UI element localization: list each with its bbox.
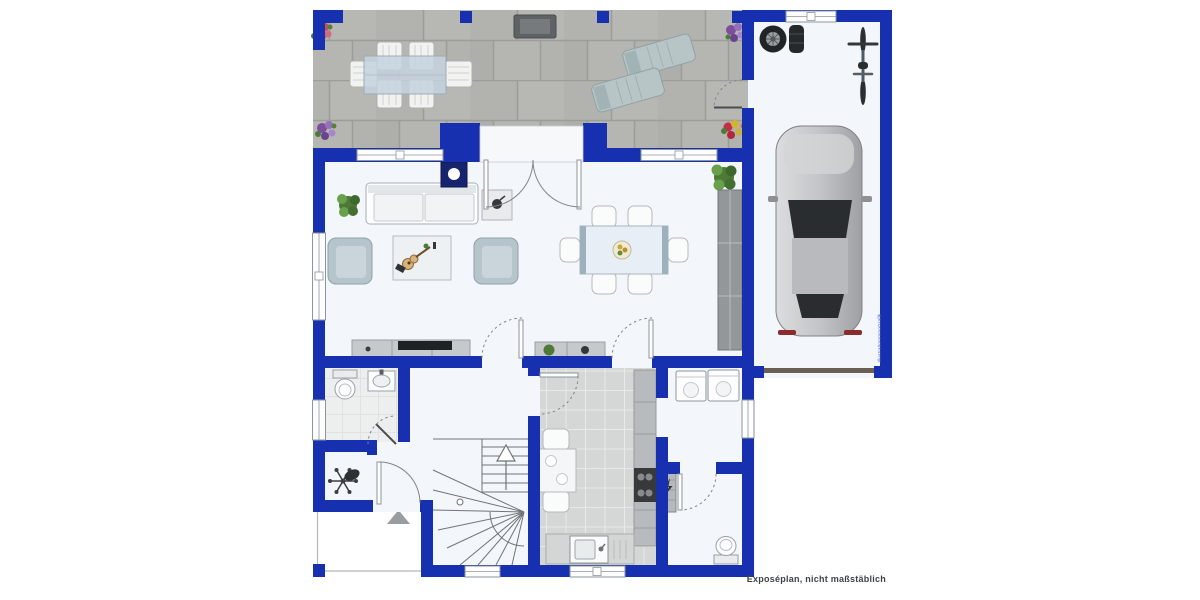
kitchen-chair (543, 491, 569, 512)
wc-east-wall (398, 368, 410, 442)
armchair (474, 238, 518, 284)
dining-chair (592, 206, 616, 228)
sink (570, 536, 608, 563)
garage-door (764, 368, 874, 373)
toilet (714, 537, 738, 565)
outdoor-chair (445, 61, 472, 87)
terrace-post (597, 11, 609, 23)
north-wall-pillar (440, 123, 480, 162)
wood-stove (441, 162, 467, 187)
footer-note: Exposéplan, nicht maßstäblich (747, 574, 886, 584)
sideboard (535, 342, 605, 358)
east-wall (742, 108, 754, 577)
washing-machine (676, 371, 706, 401)
window (570, 566, 625, 577)
garage-south-wall (874, 366, 892, 378)
potted-plant (337, 194, 360, 217)
kitchen-west-wall (528, 368, 540, 376)
dining-chair (592, 272, 616, 294)
living-south-wall (522, 356, 612, 368)
outdoor-dining-table (364, 56, 446, 94)
stair-west-wall (421, 500, 433, 577)
window (357, 150, 443, 161)
kitchen-east-wall (656, 368, 668, 398)
car-roof (792, 238, 848, 294)
kitchen-west-wall (528, 416, 540, 567)
washbasin (368, 370, 395, 392)
window (641, 150, 717, 161)
porch-post (313, 564, 325, 577)
living-south-wall (652, 356, 742, 368)
kitchen-table (538, 449, 576, 492)
north-wall-pillar (583, 123, 607, 162)
car-mirror (768, 196, 778, 202)
east-wall (742, 10, 754, 80)
utility-south-wall (716, 462, 742, 474)
car-windshield (788, 200, 852, 238)
window (465, 566, 500, 577)
dining-chair (560, 238, 580, 262)
toilet (333, 370, 357, 399)
floor-plan-page: Exposéplan, nicht maßstäblich Illustrati… (0, 0, 1200, 600)
kitchen-counter-bottom (546, 534, 634, 564)
tire-stack (760, 25, 805, 53)
terrace-post (460, 11, 472, 23)
table-decor (433, 242, 436, 249)
west-wall (313, 148, 325, 512)
kitchen-counter-right (634, 370, 656, 546)
window (742, 400, 754, 438)
utility-south-wall (656, 462, 680, 474)
car-taillight (844, 330, 862, 335)
car-mirror (862, 196, 872, 202)
kitchen-chair (543, 429, 569, 450)
floor-plan-svg: Exposéplan, nicht maßstäblich Illustrati… (0, 0, 1200, 600)
fruit-bowl (613, 241, 631, 259)
tall-cabinet (718, 190, 742, 350)
dining-chair (668, 238, 688, 262)
living-south-wall (325, 356, 482, 368)
car-rear-window (796, 294, 844, 318)
tv-lowboard (352, 340, 470, 358)
car-taillight (778, 330, 796, 335)
garage-window (786, 11, 836, 22)
potted-plant (712, 165, 737, 191)
dining-chair (628, 272, 652, 294)
car (768, 126, 872, 336)
window (313, 233, 326, 320)
tv (398, 341, 452, 350)
utility-room-fixtures (676, 370, 739, 401)
kitchen-east-wall (656, 437, 668, 567)
armchair (328, 238, 372, 284)
coffee-table (393, 236, 451, 280)
window (313, 400, 326, 440)
dryer (708, 370, 739, 401)
sofa (366, 183, 478, 224)
table-decor (424, 244, 429, 249)
grill (514, 15, 556, 38)
dining-table (580, 226, 668, 274)
terrace-corner-wall (313, 10, 325, 50)
dining-chair (628, 206, 652, 228)
hall-south-wall (313, 500, 373, 512)
stove (634, 468, 656, 502)
watermark: IllustrationImmoGrafik (877, 313, 882, 363)
